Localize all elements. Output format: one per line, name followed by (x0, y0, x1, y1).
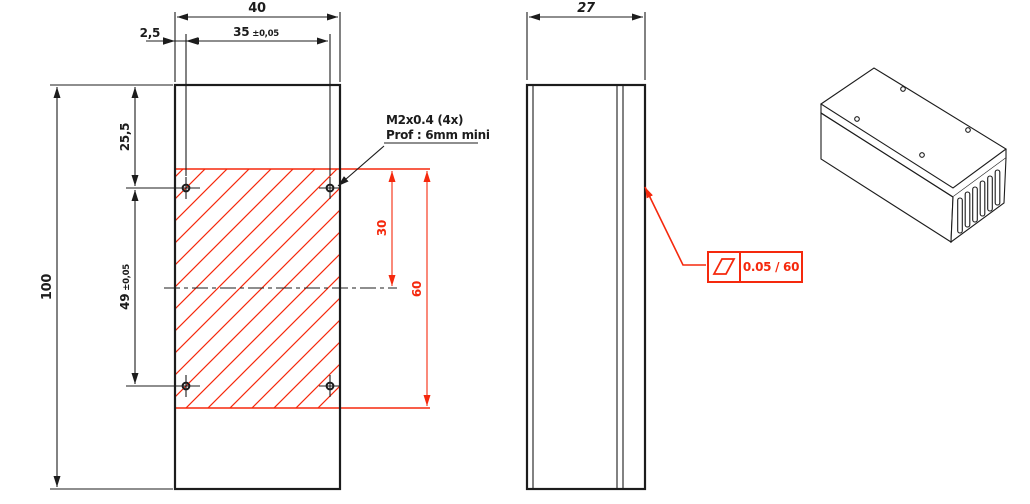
dim-holes-dy-label: 49±0,05 (118, 264, 132, 310)
dim-zone-to-center-label: 30 (375, 220, 389, 236)
isometric-view (821, 68, 1006, 242)
flatness-callout: 0.05 / 60 (645, 187, 802, 282)
dim-zone-to-center-30: 30 (375, 171, 392, 286)
dim-holes-dx-label: 35±0,05 (233, 25, 279, 39)
iso-hole (901, 87, 906, 92)
dim-edge-offset-2-5: 2,5 (140, 26, 204, 45)
front-view: 100 25,5 49±0,05 40 2,5 (40, 1, 490, 489)
dim-edge-offset-label: 2,5 (140, 26, 160, 40)
dim-top-to-hole-25-5: 25,5 (118, 87, 135, 186)
dim-holes-dy-49: 49±0,05 (118, 190, 135, 384)
iso-hole (855, 117, 860, 122)
dim-holes-dx-35: 35±0,05 (188, 25, 328, 41)
iso-hole (920, 153, 925, 158)
drawing-canvas: 100 25,5 49±0,05 40 2,5 (0, 0, 1030, 504)
dim-zone-height-60: 60 (410, 171, 427, 406)
iso-hole (966, 128, 971, 133)
flatness-leader (645, 187, 706, 265)
dim-zone-height-label: 60 (410, 281, 424, 297)
thread-callout-line1: M2x0.4 (4x) (386, 113, 463, 127)
dim-height-label: 100 (40, 274, 55, 300)
side-view: 27 0.05 / 60 (527, 1, 802, 489)
dim-width-label: 40 (248, 1, 266, 16)
dim-height-100: 100 (40, 87, 57, 487)
flatness-value: 0.05 / 60 (743, 260, 799, 274)
thread-callout-line2: Prof : 6mm mini (386, 128, 490, 142)
thread-callout-leader (338, 146, 384, 186)
flatness-parallelogram-icon (714, 259, 734, 274)
dim-depth-label: 27 (577, 1, 596, 16)
dim-top-to-hole-label: 25,5 (118, 123, 132, 151)
technical-drawing: 100 25,5 49±0,05 40 2,5 (0, 0, 1030, 504)
dim-depth-27: 27 (527, 1, 645, 80)
flatness-frame: 0.05 / 60 (708, 252, 802, 282)
thread-callout: M2x0.4 (4x) Prof : 6mm mini (338, 113, 490, 186)
dim-width-40: 40 (177, 1, 338, 17)
side-view-outline (527, 85, 645, 489)
